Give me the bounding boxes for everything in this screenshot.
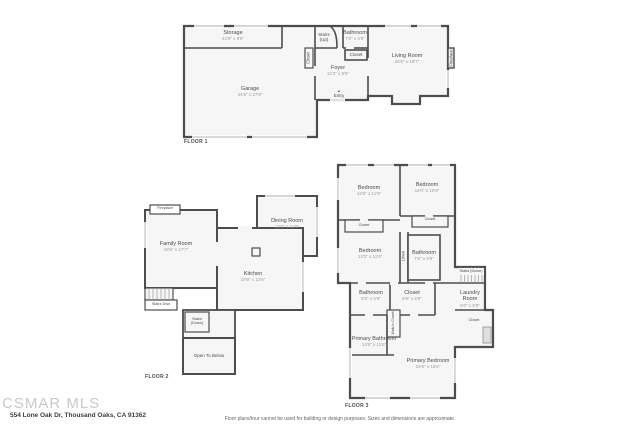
disclaimer-text: Floor plans/tour cannot be used for buil…: [225, 416, 455, 422]
floor2-tag: FLOOR 2: [145, 374, 169, 380]
floor1-outline: [184, 26, 448, 137]
floor1-plan: [180, 20, 465, 152]
floor3-shelf: [483, 327, 491, 343]
floor2-plan: [140, 192, 320, 382]
floor3-tag: FLOOR 3: [345, 403, 369, 409]
floor2-rooms: [145, 196, 317, 374]
floorplan-document: Storage 44'9" x 8'6" Garage 44'6" x 27'9…: [0, 0, 640, 426]
floor1-tag: FLOOR 1: [184, 139, 208, 145]
property-address: 554 Lone Oak Dr, Thousand Oaks, CA 91362: [10, 412, 146, 419]
mls-watermark: CSMAR MLS: [2, 395, 100, 412]
floor3-plan: [330, 158, 502, 408]
floor1-fireplace-box: [448, 48, 454, 68]
floor3-stairs-label-bg: [459, 268, 484, 275]
